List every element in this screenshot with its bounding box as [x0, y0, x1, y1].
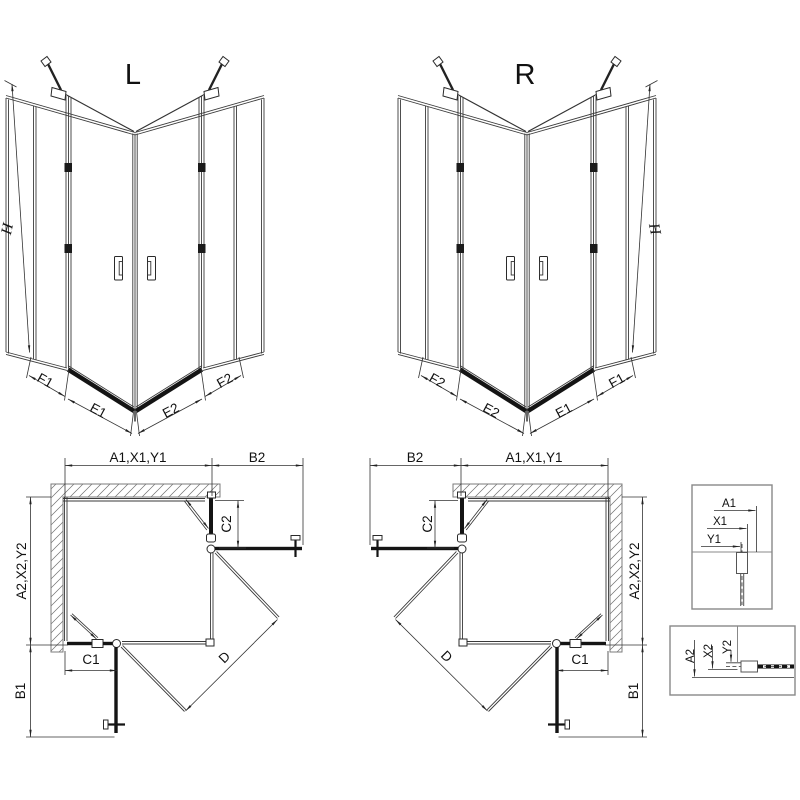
segment-label-e2: E2: [480, 400, 502, 421]
segment-label-e1: E1: [87, 400, 109, 421]
dim-label-a1x1y1: A1,X1,Y1: [505, 450, 562, 465]
height-dim-label: H: [645, 221, 664, 237]
dim-label-a1x1y1: A1,X1,Y1: [109, 450, 166, 465]
iso-view-left: L H F1 E1 E2 F2: [0, 57, 264, 437]
segment-label-e2: E2: [160, 400, 182, 421]
shower-enclosure-dimension-drawing: L H F1 E1 E2 F2 R H F2 E2 E1 F1 A1,X1,Y1…: [0, 0, 800, 800]
dim-label-c1: C1: [82, 652, 99, 667]
height-dimension: H: [0, 81, 30, 353]
wall-profile-section: [737, 553, 748, 574]
dim-label-c2: C2: [219, 515, 234, 532]
drawing-canvas: L H F1 E1 E2 F2 R H F2 E2 E1 F1 A1,X1,Y1…: [0, 0, 800, 800]
detail-box-floor-profile: A2 X2 Y2: [670, 626, 795, 695]
variant-label-left: L: [125, 59, 141, 91]
iso-view-right: R H F2 E2 E1 F1: [398, 57, 664, 437]
plan-view-left: A1,X1,Y1 B2 A2,X2,Y2 B1 C2 C1 D: [13, 450, 303, 737]
dim-label-c1: C1: [571, 652, 588, 667]
dim-label-a2x2y2: A2,X2,Y2: [14, 542, 29, 599]
detail-dim-x1: X1: [713, 516, 727, 528]
dim-label-b1: B1: [13, 683, 28, 700]
floor-profile-section: [741, 661, 758, 672]
detail-box-wall-profile: A1 X1 Y1: [692, 485, 772, 609]
variant-label-right: R: [515, 59, 536, 91]
dim-label-b2: B2: [249, 450, 266, 465]
detail-dim-x2: X2: [703, 644, 715, 658]
segment-label-f1: F1: [606, 370, 627, 391]
wall-hatched: [453, 484, 622, 652]
dim-label-b1: B1: [626, 683, 641, 700]
wall-hatched: [51, 484, 220, 652]
detail-dim-a1: A1: [722, 498, 736, 510]
detail-dim-y2: Y2: [722, 640, 734, 654]
dim-label-d: D: [438, 648, 456, 666]
plan-view-right: A1,X1,Y1 B2 A2,X2,Y2 B1 C2 C1 D: [370, 450, 647, 737]
dim-label-c2: C2: [420, 515, 435, 532]
dim-label-a2x2y2: A2,X2,Y2: [627, 542, 642, 599]
segment-label-f1: F1: [35, 370, 56, 391]
detail-dim-y1: Y1: [707, 534, 721, 546]
dim-label-b2: B2: [407, 450, 424, 465]
segment-label-f2: F2: [427, 370, 448, 391]
segment-label-f2: F2: [214, 370, 235, 391]
dim-label-d: D: [216, 648, 234, 666]
height-dimension: H: [633, 81, 665, 353]
segment-label-e1: E1: [553, 400, 575, 421]
detail-dim-a2: A2: [685, 649, 697, 663]
